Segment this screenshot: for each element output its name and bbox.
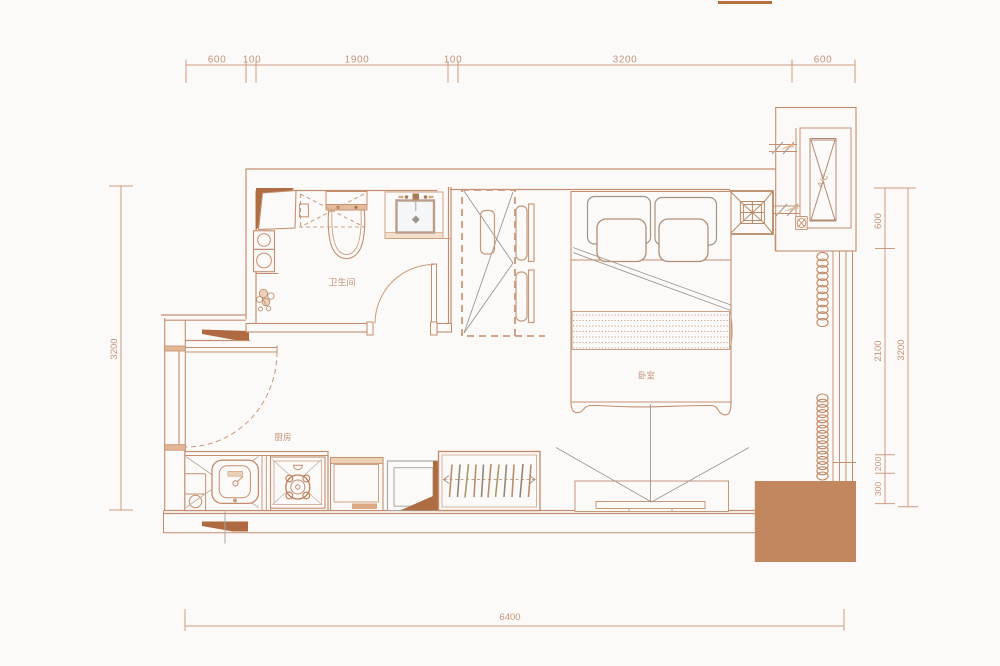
svg-text:1900: 1900 [345, 55, 370, 66]
svg-text:卫生间: 卫生间 [328, 277, 355, 288]
svg-text:600: 600 [873, 213, 884, 229]
svg-text:3200: 3200 [613, 55, 638, 66]
svg-text:300: 300 [873, 482, 883, 496]
svg-text:200: 200 [873, 457, 883, 471]
svg-text:2100: 2100 [873, 340, 884, 361]
svg-text:3200: 3200 [896, 339, 907, 360]
svg-text:100: 100 [243, 55, 262, 66]
svg-text:100: 100 [444, 55, 463, 66]
svg-text:600: 600 [814, 55, 833, 66]
svg-text:厨房: 厨房 [274, 432, 291, 442]
svg-text:3200: 3200 [109, 338, 120, 359]
svg-text:600: 600 [208, 55, 227, 66]
svg-text:卧室: 卧室 [638, 371, 656, 381]
svg-text:6400: 6400 [499, 612, 520, 623]
